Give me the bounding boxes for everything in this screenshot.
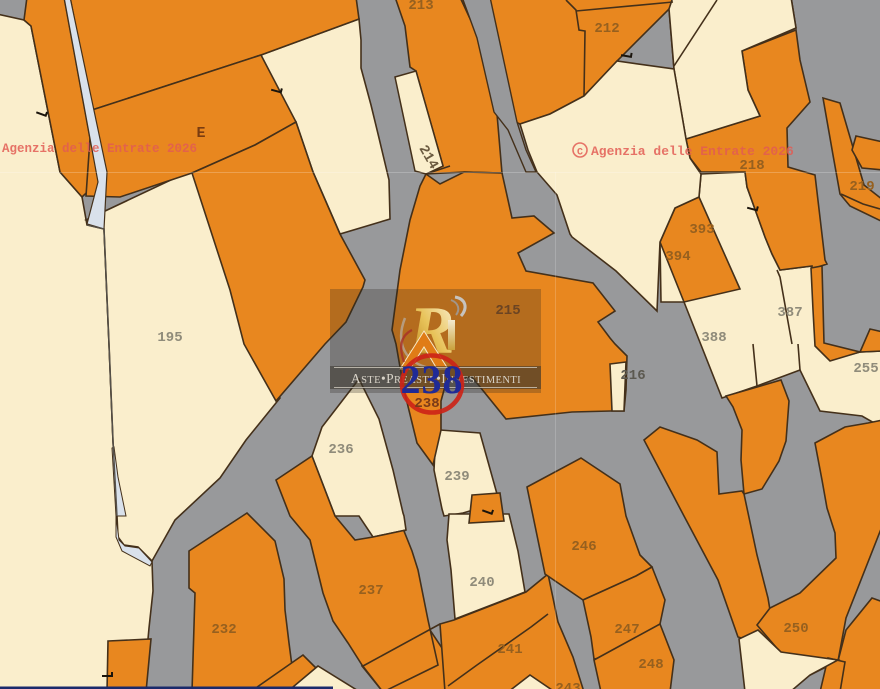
- svg-text:388: 388: [701, 330, 726, 346]
- svg-text:232: 232: [211, 622, 236, 638]
- svg-text:Agenzia delle Entrate 2026: Agenzia delle Entrate 2026: [591, 144, 794, 159]
- svg-text:239: 239: [444, 469, 469, 485]
- svg-text:394: 394: [665, 249, 690, 265]
- svg-text:393: 393: [689, 222, 714, 238]
- svg-text:237: 237: [358, 583, 383, 599]
- svg-text:246: 246: [571, 539, 596, 555]
- svg-text:213: 213: [408, 0, 433, 14]
- svg-text:250: 250: [783, 621, 808, 637]
- svg-text:218: 218: [739, 158, 764, 174]
- svg-text:Agenzia delle Entrate 2026: Agenzia delle Entrate 2026: [2, 142, 197, 156]
- svg-text:212: 212: [594, 21, 619, 37]
- svg-text:216: 216: [620, 368, 645, 384]
- svg-text:248: 248: [638, 657, 663, 673]
- svg-text:236: 236: [328, 442, 353, 458]
- svg-text:387: 387: [777, 305, 802, 321]
- svg-text:238: 238: [414, 396, 439, 412]
- svg-text:243: 243: [555, 681, 580, 689]
- svg-text:241: 241: [497, 642, 522, 658]
- svg-text:215: 215: [495, 303, 520, 319]
- svg-text:195: 195: [157, 330, 182, 346]
- svg-text:247: 247: [614, 622, 639, 638]
- svg-text:240: 240: [469, 575, 494, 591]
- svg-text:219: 219: [849, 179, 874, 195]
- svg-text:C: C: [577, 148, 583, 159]
- svg-text:255: 255: [853, 361, 878, 377]
- svg-text:E: E: [196, 125, 205, 142]
